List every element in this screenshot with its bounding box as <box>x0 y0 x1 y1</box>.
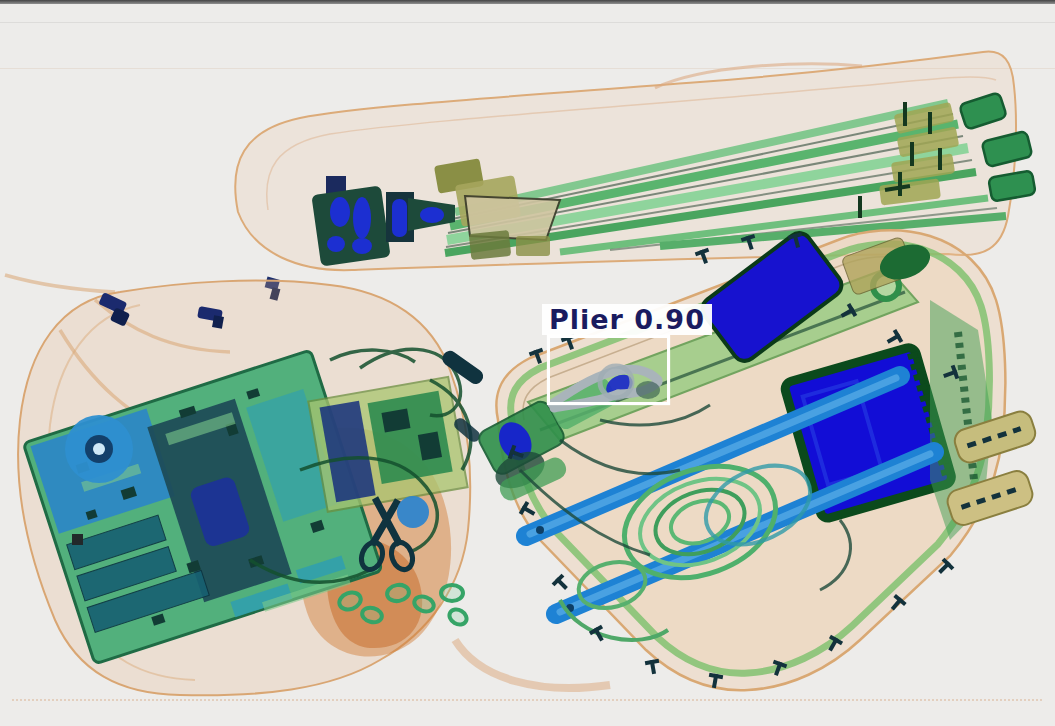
round-metal-item <box>397 496 429 528</box>
scan-artifact-dotted-line <box>12 699 1042 701</box>
detection-label: Plier 0.90 <box>542 304 712 335</box>
xray-scan-viewport: Plier 0.90 <box>0 0 1055 726</box>
backpack <box>5 275 486 695</box>
hard-case <box>476 228 1039 690</box>
xray-image <box>0 0 1055 726</box>
detection-bounding-box <box>547 335 670 405</box>
cooling-fan <box>65 415 133 483</box>
detection-label-text: Plier 0.90 <box>549 304 705 335</box>
secondary-module <box>308 377 467 512</box>
organic-smudge <box>455 640 610 688</box>
